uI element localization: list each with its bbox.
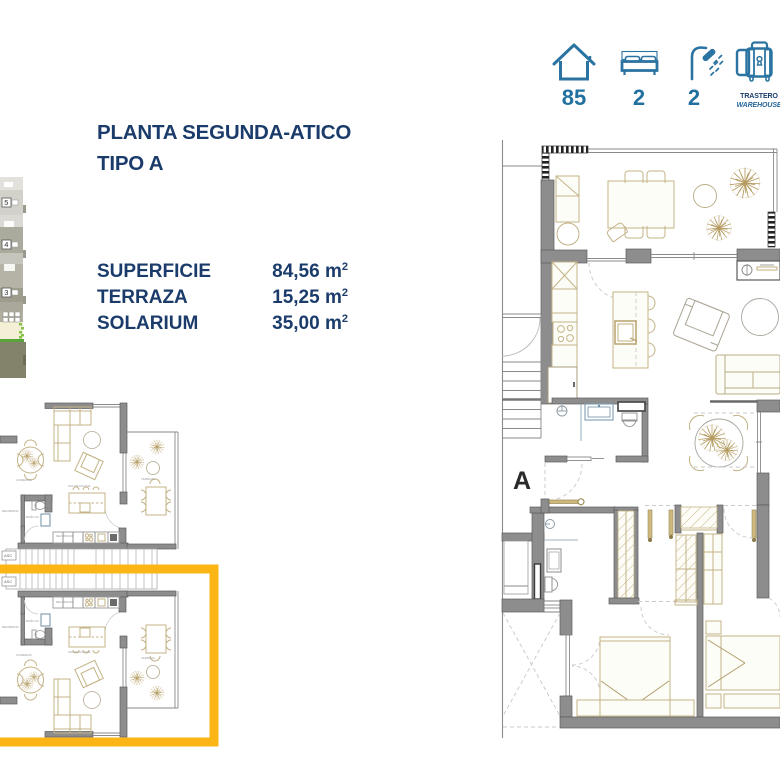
svg-text:RECIBIDOR: RECIBIDOR <box>56 600 74 604</box>
svg-text:COMEDOR: COMEDOR <box>16 653 33 657</box>
svg-text:2: 2 <box>633 85 645 110</box>
svg-text:RECIBIDOR: RECIBIDOR <box>56 534 74 538</box>
svg-text:SUPERFICIE: SUPERFICIE <box>97 261 211 282</box>
svg-text:84,56 m2: 84,56 m2 <box>272 261 348 282</box>
svg-text:RECIBIDOR: RECIBIDOR <box>2 625 20 629</box>
svg-text:SOLARIUM: SOLARIUM <box>97 313 198 334</box>
svg-text:WAREHOUSE: WAREHOUSE <box>737 102 780 109</box>
svg-text:2: 2 <box>688 85 700 110</box>
svg-text:TERRAZA: TERRAZA <box>141 656 155 660</box>
svg-text:4: 4 <box>4 240 8 249</box>
svg-text:TERRAZA: TERRAZA <box>141 477 155 481</box>
svg-text:5: 5 <box>4 198 8 207</box>
svg-text:SALON/COCINA: SALON/COCINA <box>68 484 91 488</box>
svg-text:85: 85 <box>562 85 586 110</box>
svg-text:RECIBIDOR: RECIBIDOR <box>2 509 20 513</box>
svg-text:COMEDOR: COMEDOR <box>16 478 33 482</box>
svg-text:BAÑO 02: BAÑO 02 <box>26 514 39 519</box>
svg-text:ASC: ASC <box>4 579 12 584</box>
svg-text:TRASTERO: TRASTERO <box>740 93 778 100</box>
svg-text:PLANTA SEGUNDA-ATICO: PLANTA SEGUNDA-ATICO <box>97 121 351 144</box>
svg-text:TIPO A: TIPO A <box>97 152 164 175</box>
svg-text:35,00 m2: 35,00 m2 <box>272 313 348 334</box>
svg-text:A: A <box>513 467 531 495</box>
svg-text:ASC: ASC <box>4 553 12 558</box>
svg-text:BAÑO 02: BAÑO 02 <box>26 618 39 623</box>
svg-text:TERRAZA: TERRAZA <box>97 287 188 308</box>
svg-text:3: 3 <box>4 288 8 297</box>
svg-text:SALON/COCINA: SALON/COCINA <box>68 650 91 654</box>
svg-text:15,25 m2: 15,25 m2 <box>272 287 348 308</box>
